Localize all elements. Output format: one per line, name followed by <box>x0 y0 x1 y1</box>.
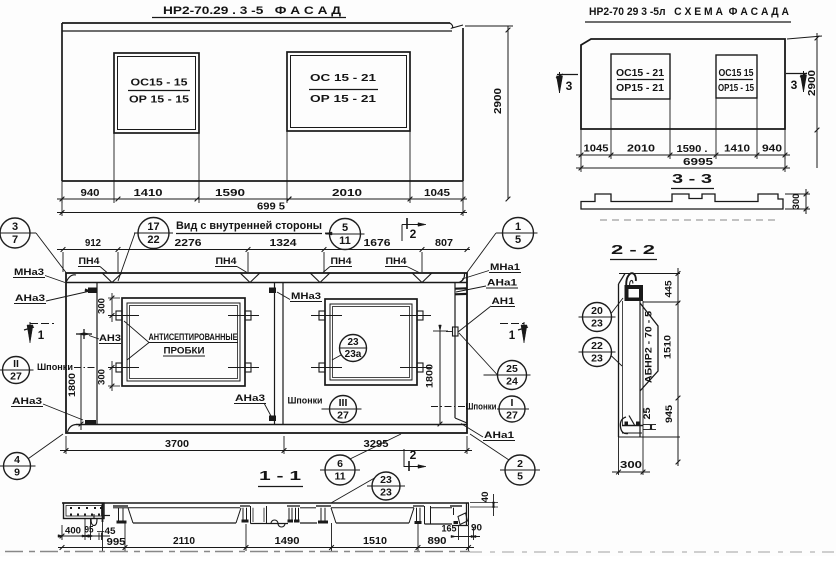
svg-text:1: 1 <box>38 330 45 342</box>
svg-text:Шпонки: Шпонки <box>288 396 323 407</box>
svg-text:5: 5 <box>515 234 521 246</box>
svg-text:23а: 23а <box>345 349 362 360</box>
svg-text:40: 40 <box>480 492 490 503</box>
svg-text:2110: 2110 <box>173 535 195 547</box>
svg-text:2: 2 <box>517 458 523 470</box>
svg-text:3: 3 <box>566 79 573 93</box>
svg-text:300: 300 <box>620 459 642 471</box>
svg-text:1045: 1045 <box>424 187 450 199</box>
svg-text:11: 11 <box>339 235 351 247</box>
svg-text:ОС15 - 15: ОС15 - 15 <box>131 78 189 89</box>
svg-text:МНа1: МНа1 <box>490 262 521 273</box>
svg-text:Шпонки: Шпонки <box>466 402 497 412</box>
svg-text:АНТИСЕПТИРОВАННЫЕ: АНТИСЕПТИРОВАННЫЕ <box>149 332 238 342</box>
svg-text:АНа3: АНа3 <box>15 293 45 304</box>
svg-text:I: I <box>511 397 514 409</box>
svg-text:ПН4: ПН4 <box>386 256 408 267</box>
svg-text:ОР15 - 15: ОР15 - 15 <box>718 83 754 94</box>
svg-text:6995: 6995 <box>683 156 713 168</box>
svg-text:1800: 1800 <box>67 373 78 397</box>
svg-text:2276: 2276 <box>175 237 202 249</box>
svg-text:23: 23 <box>380 487 392 499</box>
svg-text:165: 165 <box>442 524 458 535</box>
svg-text:АБНР2 - 70 - 5: АБНР2 - 70 - 5 <box>644 311 654 383</box>
svg-text:ОР 15 - 21: ОР 15 - 21 <box>310 94 377 105</box>
svg-text:МНа3: МНа3 <box>291 291 321 302</box>
svg-text:4: 4 <box>14 454 20 466</box>
svg-text:9: 9 <box>14 467 20 479</box>
svg-text:25: 25 <box>642 407 653 420</box>
svg-text:3 - 3: 3 - 3 <box>672 172 712 186</box>
svg-text:300: 300 <box>97 369 108 385</box>
svg-text:25: 25 <box>506 363 518 375</box>
svg-text:1800: 1800 <box>425 364 436 388</box>
svg-text:1324: 1324 <box>270 237 297 249</box>
svg-text:III: III <box>339 397 348 409</box>
svg-text:300: 300 <box>97 298 108 314</box>
svg-text:807: 807 <box>435 237 453 249</box>
svg-text:Вид с внутренней стороны: Вид с внутренней стороны <box>176 220 322 232</box>
svg-text:23: 23 <box>347 337 359 348</box>
svg-text:АН3: АН3 <box>99 333 121 344</box>
svg-text:АНа1: АНа1 <box>487 278 518 289</box>
svg-text:II: II <box>13 358 19 370</box>
svg-text:940: 940 <box>762 143 782 155</box>
svg-text:3295: 3295 <box>364 438 389 450</box>
svg-text:5: 5 <box>517 471 523 483</box>
svg-text:НР2-70.29 . 3 -5 Ф А С А Д: НР2-70.29 . 3 -5 Ф А С А Д <box>163 5 341 17</box>
svg-text:95: 95 <box>85 525 95 536</box>
svg-text:23: 23 <box>591 318 603 330</box>
svg-text:ОР 15 - 15: ОР 15 - 15 <box>129 95 190 106</box>
svg-text:НР2-70 29 3 -5л С Х Е М А Ф: НР2-70 29 3 -5л С Х Е М А Ф А С А Д А <box>589 6 789 18</box>
svg-text:940: 940 <box>81 187 100 199</box>
svg-text:1: 1 <box>515 221 521 233</box>
svg-text:11: 11 <box>334 471 345 483</box>
svg-text:995: 995 <box>107 536 126 548</box>
svg-text:22: 22 <box>591 340 603 352</box>
svg-text:ОС15 - 21: ОС15 - 21 <box>616 68 664 79</box>
svg-text:2900: 2900 <box>492 88 504 114</box>
svg-text:2010: 2010 <box>627 143 655 155</box>
svg-text:1 - 1: 1 - 1 <box>259 469 301 483</box>
svg-text:2 - 2: 2 - 2 <box>611 243 655 257</box>
svg-text:90: 90 <box>471 523 482 534</box>
svg-text:27: 27 <box>10 371 22 383</box>
svg-text:300: 300 <box>791 194 802 210</box>
svg-text:АНа3: АНа3 <box>235 393 265 404</box>
svg-text:23: 23 <box>591 353 603 365</box>
svg-text:24: 24 <box>506 376 518 388</box>
svg-text:ОР15 - 21: ОР15 - 21 <box>616 83 664 94</box>
svg-text:23: 23 <box>380 474 392 486</box>
svg-text:ОС 15 - 21: ОС 15 - 21 <box>310 73 377 84</box>
svg-text:2900: 2900 <box>806 70 818 96</box>
svg-text:6: 6 <box>337 458 343 470</box>
svg-text:1590: 1590 <box>215 187 245 199</box>
svg-text:400: 400 <box>65 526 81 537</box>
svg-text:3700: 3700 <box>165 438 189 450</box>
svg-text:699 5: 699 5 <box>257 201 285 213</box>
svg-text:2010: 2010 <box>332 187 362 199</box>
svg-text:3: 3 <box>791 78 798 92</box>
svg-text:ПН4: ПН4 <box>216 256 238 267</box>
svg-text:МНа3: МНа3 <box>14 267 44 278</box>
svg-text:АНа1: АНа1 <box>484 430 515 441</box>
svg-text:27: 27 <box>337 410 349 422</box>
svg-text:ПН4: ПН4 <box>331 256 353 267</box>
svg-text:АНа3: АНа3 <box>12 396 42 407</box>
svg-text:1: 1 <box>509 330 516 342</box>
svg-text:3: 3 <box>12 221 18 233</box>
svg-text:1676: 1676 <box>364 237 391 249</box>
svg-text:1590 .: 1590 . <box>677 143 708 155</box>
svg-text:АН1: АН1 <box>492 296 516 307</box>
svg-text:7: 7 <box>12 234 18 246</box>
svg-text:27: 27 <box>506 410 518 422</box>
svg-text:5: 5 <box>342 222 348 234</box>
svg-text:1045: 1045 <box>584 143 609 155</box>
svg-text:1490: 1490 <box>275 535 300 547</box>
svg-text:22: 22 <box>147 234 159 246</box>
svg-text:17: 17 <box>147 221 159 233</box>
svg-text:ПН4: ПН4 <box>79 256 101 267</box>
svg-text:445: 445 <box>664 280 675 298</box>
svg-text:20: 20 <box>591 305 603 317</box>
svg-text:1510: 1510 <box>363 535 387 547</box>
svg-text:2: 2 <box>410 227 417 241</box>
svg-text:1410: 1410 <box>134 187 163 199</box>
svg-text:1410: 1410 <box>724 143 750 155</box>
svg-text:Шпонки: Шпонки <box>37 362 73 373</box>
svg-text:890: 890 <box>428 535 447 547</box>
svg-text:912: 912 <box>85 237 101 249</box>
svg-text:1510: 1510 <box>663 335 674 359</box>
svg-text:ПРОБКИ: ПРОБКИ <box>164 346 205 356</box>
svg-text:ОС15 15: ОС15 15 <box>719 68 754 79</box>
svg-text:945: 945 <box>664 404 675 423</box>
